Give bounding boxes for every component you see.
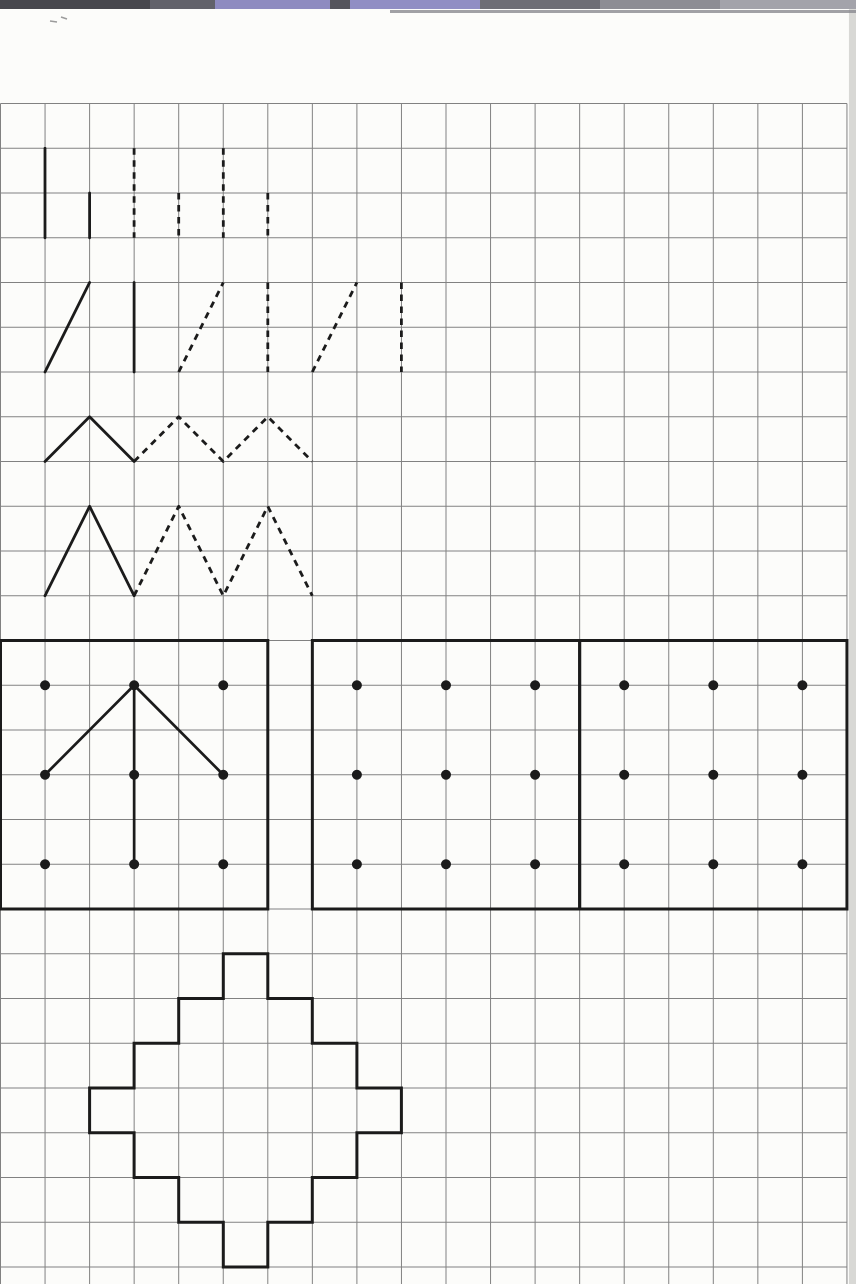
scan-edge-strip bbox=[350, 0, 480, 9]
grid-dot bbox=[441, 859, 451, 869]
grid-dot bbox=[352, 770, 362, 780]
grid-dot bbox=[708, 680, 718, 690]
worksheet-scan-svg bbox=[0, 0, 856, 1284]
grid-dot bbox=[797, 770, 807, 780]
grid-dot bbox=[218, 680, 228, 690]
grid-dot bbox=[708, 859, 718, 869]
scan-edge-line bbox=[390, 10, 856, 13]
scan-edge-strip bbox=[480, 0, 600, 9]
grid-dot bbox=[441, 770, 451, 780]
grid-dot bbox=[797, 859, 807, 869]
grid-dot bbox=[218, 859, 228, 869]
grid-dot bbox=[40, 680, 50, 690]
grid-dot bbox=[797, 680, 807, 690]
grid-dot bbox=[40, 859, 50, 869]
grid-dot bbox=[530, 770, 540, 780]
pencil-mark bbox=[50, 21, 57, 22]
grid-dot bbox=[708, 770, 718, 780]
scan-edge-strip bbox=[0, 0, 150, 9]
grid-dot bbox=[530, 680, 540, 690]
grid-dot bbox=[352, 859, 362, 869]
grid-dot bbox=[352, 680, 362, 690]
worksheet-page bbox=[0, 0, 856, 1284]
scan-edge-strip bbox=[215, 0, 330, 9]
grid-dot bbox=[619, 859, 629, 869]
grid-dot bbox=[441, 680, 451, 690]
grid-dot bbox=[619, 770, 629, 780]
paper-right-edge bbox=[849, 0, 856, 1284]
scan-edge-strip bbox=[330, 0, 350, 9]
scan-edge-strip bbox=[720, 0, 856, 9]
scan-edge-strip bbox=[150, 0, 215, 9]
scan-edge-strip bbox=[600, 0, 720, 9]
grid-dot bbox=[530, 859, 540, 869]
grid-dot bbox=[619, 680, 629, 690]
